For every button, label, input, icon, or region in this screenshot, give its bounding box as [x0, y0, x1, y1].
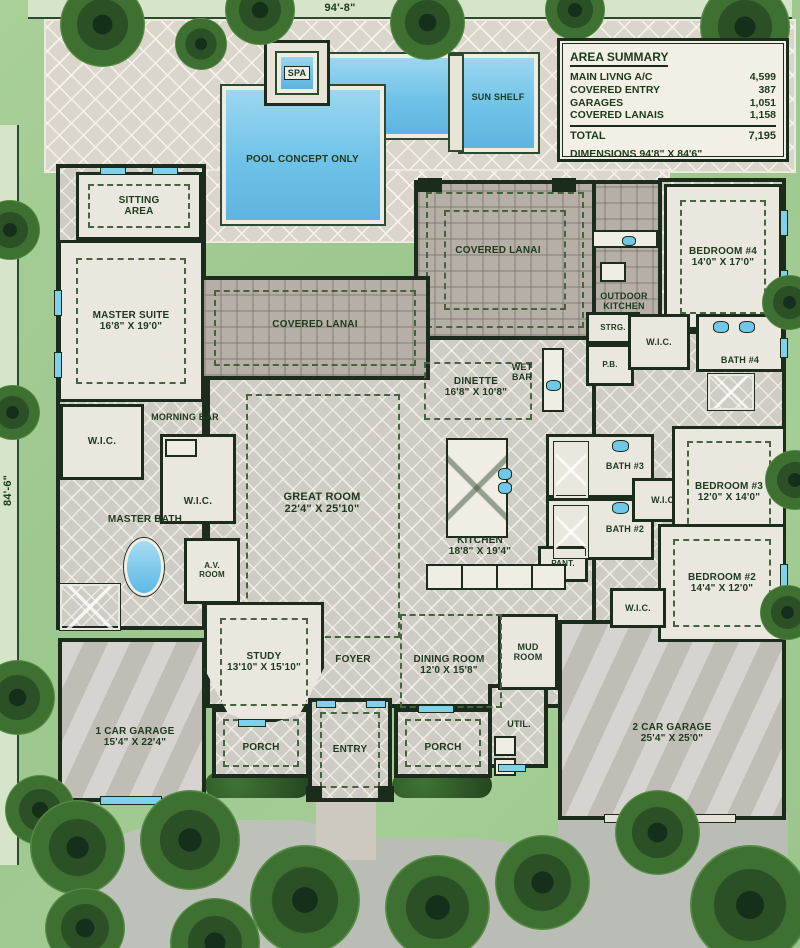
util-appliance — [494, 736, 516, 756]
bath4-sink — [739, 321, 755, 333]
summary-dimensions: DIMENSIONS 94'8" X 84'6" — [570, 148, 776, 160]
tree — [140, 790, 240, 890]
window-marker — [418, 705, 454, 713]
master-bathtub — [124, 538, 164, 596]
entry-column — [306, 786, 322, 802]
kitchen-sink — [498, 482, 512, 494]
morning-bar-cabinet — [165, 439, 197, 457]
pool-divider — [450, 56, 462, 150]
room-av: A.V. ROOM — [184, 538, 240, 604]
garage1-door — [100, 796, 162, 805]
strg-label: STRG. — [600, 324, 625, 333]
sitting-area-label: SITTING AREA — [107, 195, 171, 217]
summary-row: MAIN LIVNG A/C4,599 — [570, 71, 776, 84]
garage1-zone — [58, 638, 206, 802]
room-wic-master-left: W.I.C. — [60, 404, 144, 480]
bath3-label: BATH #3 — [605, 461, 645, 471]
window-marker — [780, 210, 788, 236]
bath4-label: BATH #4 — [718, 355, 762, 365]
tree — [175, 18, 227, 70]
sun-shelf-pool — [460, 54, 538, 152]
outdoor-grill — [600, 262, 626, 282]
window-marker — [238, 719, 266, 727]
bedroom3-label: BEDROOM #312'0" X 14'0" — [681, 481, 777, 503]
room-sitting-area: SITTING AREA — [76, 172, 202, 240]
lanai-tray-outline — [214, 290, 416, 366]
pool-body — [222, 86, 384, 224]
lanai-tray-outline — [426, 192, 584, 328]
window-marker — [780, 338, 788, 358]
tree — [0, 385, 40, 440]
bath3-shower — [554, 442, 588, 498]
wic-label: W.I.C. — [625, 603, 651, 613]
bath2-label: BATH #2 — [605, 524, 645, 534]
kitchen-sink — [498, 468, 512, 480]
entry-column — [378, 786, 394, 802]
lanai-tray-outline — [444, 210, 566, 310]
summary-row: GARAGES1,051 — [570, 97, 776, 110]
tree — [250, 845, 360, 948]
summary-row: COVERED LANAIS1,158 — [570, 109, 776, 122]
tree — [0, 660, 55, 735]
wet-bar-sink — [546, 380, 561, 391]
wic-label: W.I.C. — [184, 496, 212, 507]
window-marker — [316, 700, 336, 708]
pb-label: P.B. — [602, 361, 617, 370]
summary-row: COVERED ENTRY387 — [570, 84, 776, 97]
outdoor-sink — [622, 236, 636, 246]
porch-tray-outline — [405, 719, 481, 767]
kitchen-counter — [426, 564, 566, 590]
wic-label: W.I.C. — [646, 337, 672, 347]
master-suite-label: MASTER SUITE16'8" X 19'0" — [85, 310, 177, 332]
room-wic-bedroom4: W.I.C. — [628, 314, 690, 370]
lanai-column — [552, 178, 576, 192]
window-marker — [498, 764, 526, 772]
tree — [0, 200, 40, 260]
master-shower — [60, 584, 120, 630]
bedroom2-label: BEDROOM #214'4" X 12'0" — [672, 572, 772, 594]
porch-right-zone — [394, 708, 492, 778]
covered-lanai-center-zone — [414, 180, 596, 340]
room-mud: MUD ROOM — [498, 614, 558, 690]
window-marker — [152, 167, 178, 175]
area-summary-box: AREA SUMMARY MAIN LIVNG A/C4,599 COVERED… — [557, 38, 789, 162]
bath4-shower — [708, 374, 754, 410]
study-label: STUDY13'10" X 15'10" — [214, 651, 314, 673]
window-marker — [54, 290, 62, 316]
bath2-sink — [612, 502, 629, 514]
spa: SPA — [277, 53, 317, 93]
room-master-suite: MASTER SUITE16'8" X 19'0" — [58, 240, 204, 402]
wic-label: W.I.C. — [88, 436, 116, 447]
tree — [495, 835, 590, 930]
garage2-zone — [558, 620, 786, 820]
bedroom4-label: BEDROOM #414'0" X 17'0" — [671, 246, 775, 268]
room-pb: P.B. — [586, 344, 634, 386]
window-marker — [366, 700, 386, 708]
av-room-label: A.V. ROOM — [194, 562, 230, 580]
bath4-sink — [713, 321, 729, 333]
window-marker — [54, 352, 62, 378]
bath2-shower — [554, 506, 588, 558]
window-marker — [100, 167, 126, 175]
covered-lanai-left-zone — [200, 276, 430, 380]
room-wic-master-right: W.I.C. — [160, 434, 236, 524]
summary-total-row: TOTAL7,195 — [570, 125, 776, 142]
tree — [30, 800, 125, 895]
floor-plan: 94'-8" 84'-6" SPA POOL CONCEPT ONLY SUN … — [0, 0, 800, 948]
room-wic-bedroom2: W.I.C. — [610, 588, 666, 628]
tree — [615, 790, 700, 875]
spa-label: SPA — [284, 66, 310, 80]
area-summary-title: AREA SUMMARY — [570, 50, 668, 67]
lanai-column — [418, 178, 442, 192]
bath3-sink — [612, 440, 629, 452]
mud-room-label: MUD ROOM — [508, 642, 548, 662]
entry-tray-outline — [320, 712, 380, 788]
